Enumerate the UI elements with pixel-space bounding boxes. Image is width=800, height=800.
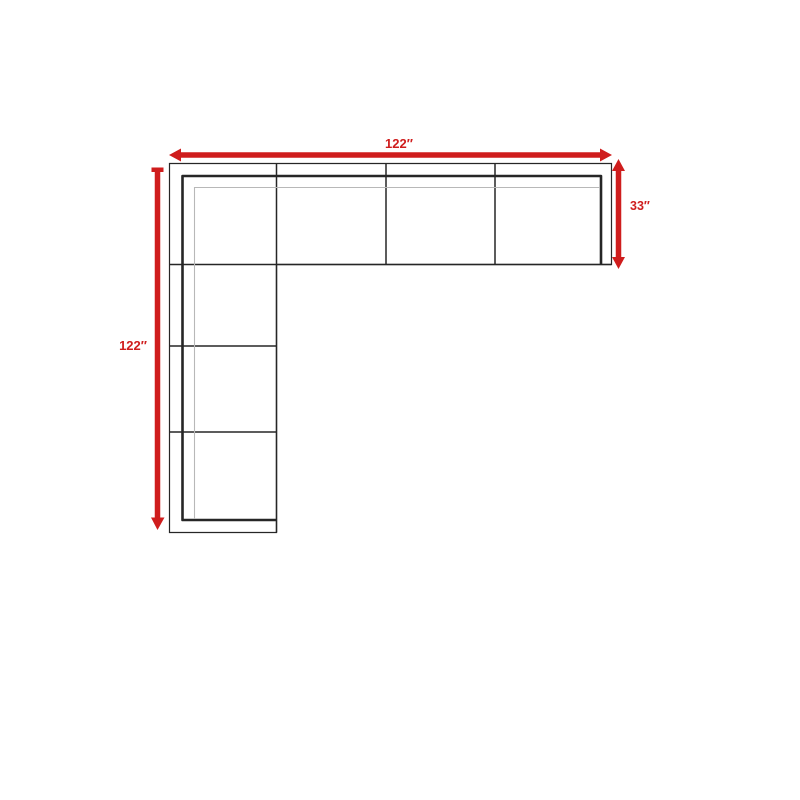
height-arrow	[151, 168, 165, 531]
sofa-outline	[170, 164, 612, 533]
seat-edge-line	[195, 188, 601, 520]
width-label: 122″	[385, 136, 413, 151]
seat-divider-lines	[170, 164, 612, 533]
height-label: 122″	[119, 338, 147, 353]
depth-arrow	[612, 159, 625, 269]
diagram-canvas: 122″ 33″ 122″	[0, 0, 800, 800]
sofa-backrest-line	[183, 176, 602, 520]
depth-label: 33″	[630, 199, 650, 213]
sofa-dimension-drawing: 122″ 33″ 122″	[0, 0, 800, 800]
